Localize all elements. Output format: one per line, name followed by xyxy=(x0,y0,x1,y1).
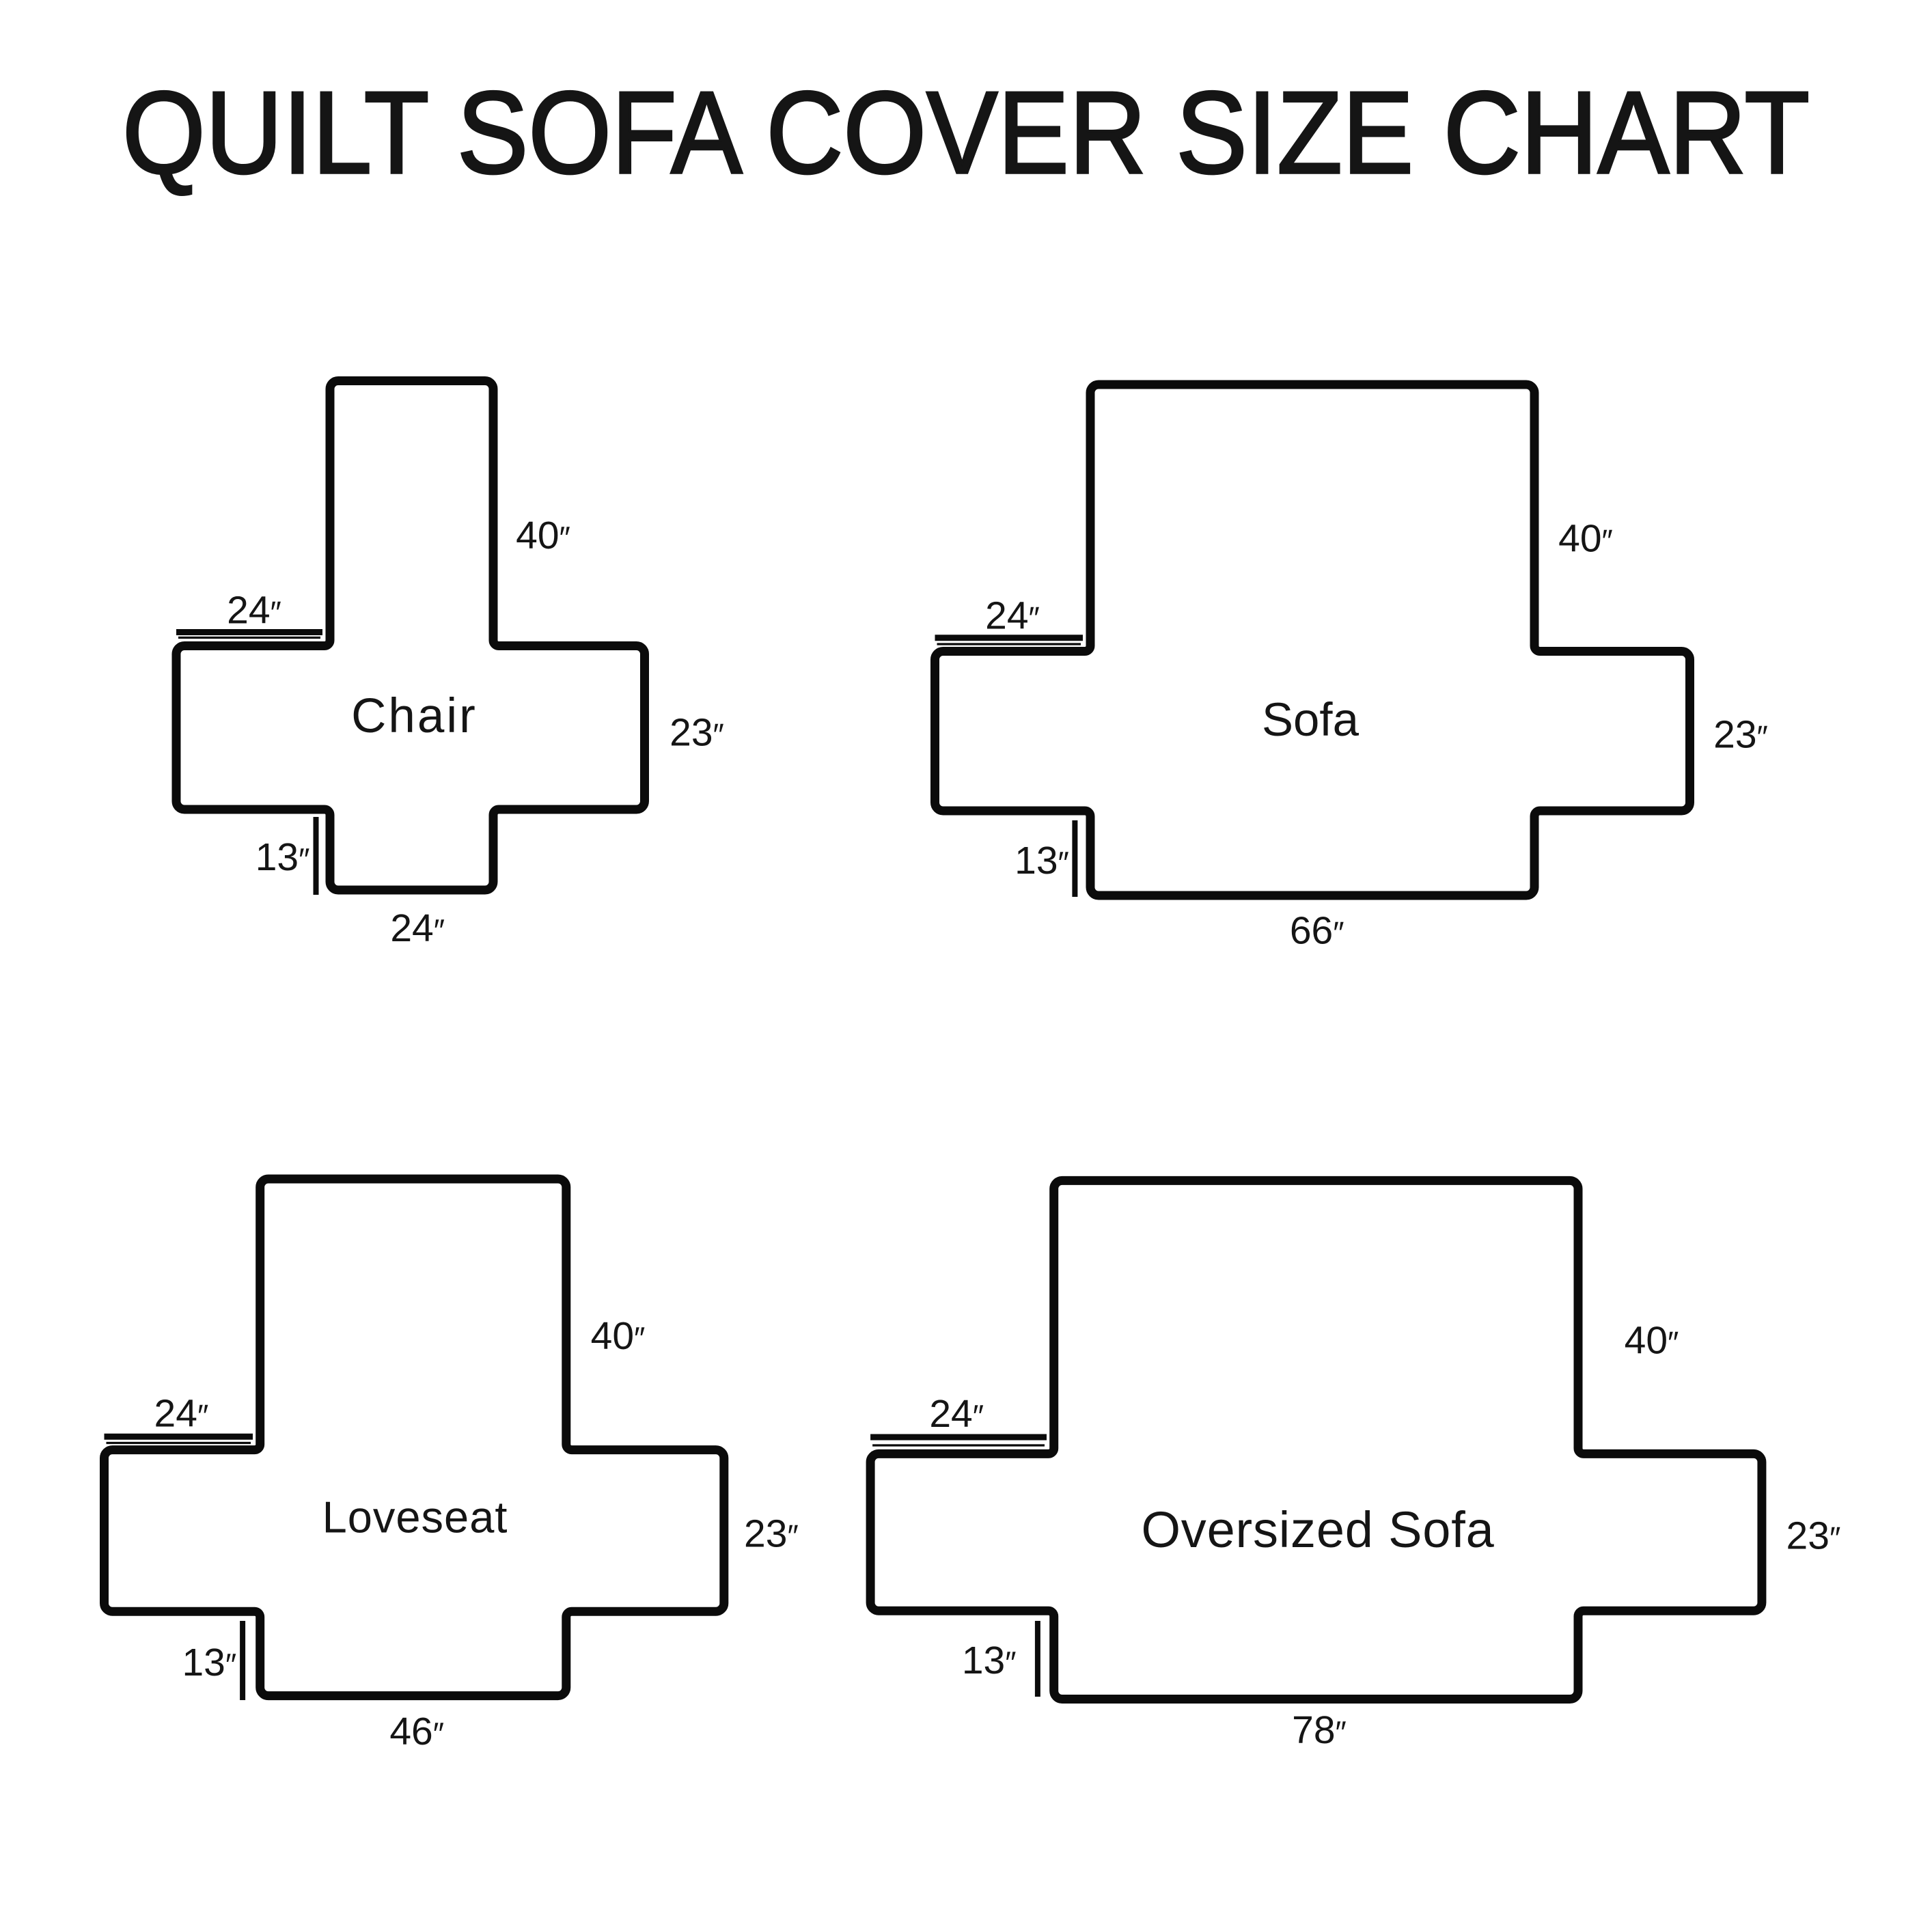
svg-text:40″: 40″ xyxy=(1625,1319,1679,1363)
svg-text:40″: 40″ xyxy=(516,514,570,557)
svg-text:Chair: Chair xyxy=(351,689,478,743)
svg-text:24″: 24″ xyxy=(390,906,445,950)
svg-text:78″: 78″ xyxy=(1292,1708,1347,1752)
svg-text:QUILT SOFA COVER SIZE CHART: QUILT SOFA COVER SIZE CHART xyxy=(122,68,1810,198)
svg-text:40″: 40″ xyxy=(1558,517,1613,561)
svg-text:66″: 66″ xyxy=(1290,908,1344,952)
svg-text:Loveseat: Loveseat xyxy=(322,1492,508,1542)
svg-text:24″: 24″ xyxy=(929,1392,984,1436)
svg-text:23″: 23″ xyxy=(670,711,724,755)
svg-text:13″: 13″ xyxy=(256,835,310,879)
svg-text:13″: 13″ xyxy=(182,1641,236,1684)
svg-text:24″: 24″ xyxy=(154,1391,209,1435)
svg-text:Sofa: Sofa xyxy=(1262,693,1360,746)
svg-text:24″: 24″ xyxy=(985,594,1040,637)
svg-text:23″: 23″ xyxy=(1786,1514,1841,1558)
svg-text:40″: 40″ xyxy=(591,1314,646,1358)
svg-text:24″: 24″ xyxy=(227,589,281,633)
svg-text:23″: 23″ xyxy=(744,1512,799,1556)
svg-text:46″: 46″ xyxy=(389,1710,444,1753)
svg-text:13″: 13″ xyxy=(1015,839,1069,882)
svg-text:23″: 23″ xyxy=(1713,713,1768,757)
svg-text:13″: 13″ xyxy=(962,1639,1017,1682)
svg-text:Oversized Sofa: Oversized Sofa xyxy=(1141,1501,1494,1558)
